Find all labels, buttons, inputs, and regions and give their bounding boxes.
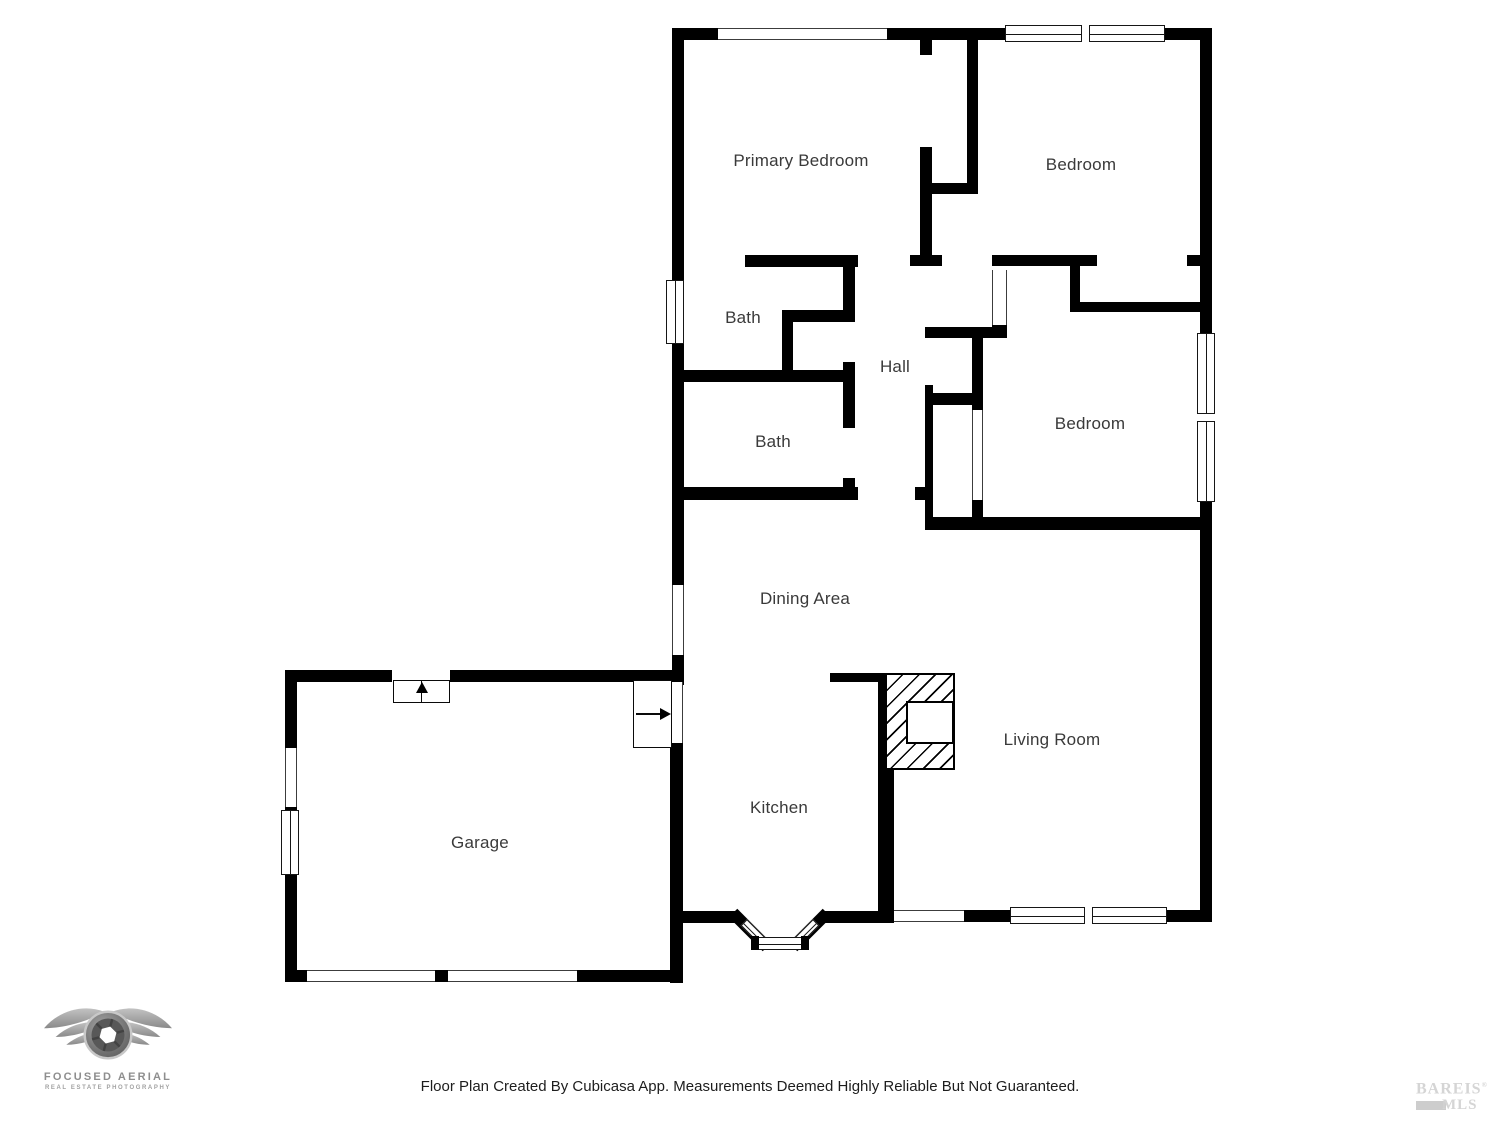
- wall: [964, 910, 1012, 922]
- wall: [745, 255, 858, 267]
- wall: [915, 487, 928, 500]
- floor-plan-page: Primary BedroomBedroomBathHallBathBedroo…: [0, 0, 1500, 1125]
- room-label-bath: Bath: [725, 308, 761, 328]
- wall: [285, 873, 297, 973]
- door-swing-right: [633, 680, 672, 748]
- wall: [927, 183, 978, 194]
- winged-camera-icon: [42, 1004, 174, 1068]
- wall: [680, 487, 858, 500]
- window-opening: [718, 28, 887, 40]
- wall: [928, 517, 1212, 530]
- room-label-kitchen: Kitchen: [750, 798, 808, 818]
- room-label-bedroom: Bedroom: [1046, 155, 1116, 175]
- wall: [801, 936, 809, 950]
- door-arrow-right-icon: [660, 708, 671, 720]
- disclaimer-text: Floor Plan Created By Cubicasa App. Meas…: [0, 1078, 1500, 1095]
- wall: [680, 370, 855, 382]
- room-label-bath: Bath: [755, 432, 791, 452]
- wall: [910, 255, 942, 266]
- wall: [967, 40, 978, 193]
- window-opening: [672, 585, 684, 655]
- wall: [285, 670, 297, 748]
- mls-name: BAREIS®: [1416, 1078, 1492, 1096]
- room-label-hall: Hall: [880, 357, 910, 377]
- mls-sub-row: MLS: [1416, 1097, 1492, 1114]
- window: [756, 937, 804, 950]
- mls-logo: BAREIS® MLS: [1416, 1078, 1492, 1114]
- window: [281, 810, 299, 875]
- wall: [577, 970, 683, 982]
- wall: [920, 40, 932, 55]
- door-arrow-up-icon: [416, 682, 428, 693]
- mls-sub: MLS: [1442, 1097, 1478, 1114]
- window-opening: [992, 270, 1007, 325]
- wall: [972, 335, 983, 410]
- wall: [1187, 255, 1212, 266]
- window-opening: [285, 748, 297, 807]
- floor-plan: Primary BedroomBedroomBathHallBathBedroo…: [0, 0, 1500, 1125]
- wall: [672, 28, 684, 282]
- wall: [285, 670, 392, 682]
- door-swing-up: [393, 680, 450, 703]
- window: [666, 280, 684, 344]
- wall: [823, 911, 894, 923]
- window: [1010, 907, 1167, 924]
- wall: [435, 970, 448, 982]
- window-opening: [448, 970, 577, 982]
- window: [1005, 25, 1165, 42]
- room-label-living-room: Living Room: [1004, 730, 1101, 750]
- wall: [670, 911, 737, 923]
- wall: [887, 28, 1007, 40]
- window-opening: [307, 970, 435, 982]
- wall: [843, 258, 855, 322]
- room-label-bedroom: Bedroom: [1055, 414, 1125, 434]
- window: [1197, 333, 1215, 502]
- room-label-primary-bedroom: Primary Bedroom: [733, 151, 868, 171]
- wall: [285, 970, 307, 982]
- wall: [925, 327, 1005, 338]
- wall: [920, 147, 932, 255]
- room-label-dining-area: Dining Area: [760, 589, 850, 609]
- wall: [843, 362, 855, 428]
- wall: [1075, 302, 1207, 312]
- wall: [992, 255, 1097, 266]
- wall: [1200, 28, 1212, 335]
- wall: [933, 393, 973, 405]
- room-label-garage: Garage: [451, 833, 509, 853]
- window-opening: [894, 910, 964, 922]
- wall: [782, 310, 793, 372]
- wall: [925, 385, 933, 530]
- wall: [1165, 910, 1212, 922]
- wall: [670, 743, 683, 983]
- wall: [751, 936, 759, 950]
- fireplace-firebox: [906, 701, 954, 744]
- wall: [1200, 500, 1212, 922]
- window-opening: [972, 410, 983, 500]
